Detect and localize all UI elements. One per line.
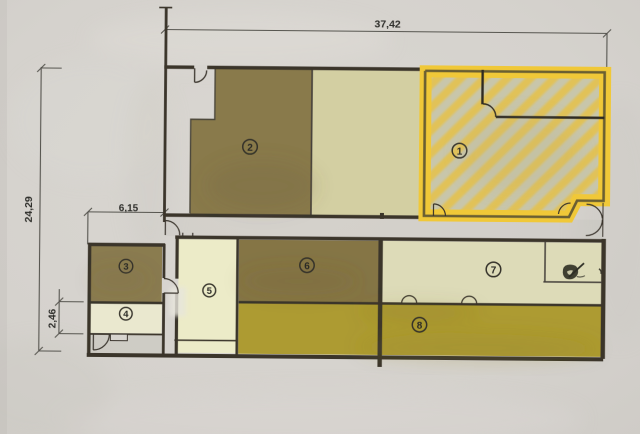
svg-text:6: 6: [304, 261, 310, 272]
svg-text:2: 2: [247, 143, 253, 154]
svg-text:5: 5: [207, 286, 213, 297]
svg-text:24,29: 24,29: [23, 196, 35, 223]
svg-text:6,15: 6,15: [119, 203, 139, 214]
svg-text:8: 8: [417, 321, 423, 332]
svg-text:37,42: 37,42: [374, 18, 401, 30]
svg-text:2,46: 2,46: [48, 308, 59, 328]
svg-text:4: 4: [123, 309, 129, 320]
svg-text:7: 7: [491, 265, 497, 276]
svg-text:3: 3: [123, 262, 128, 273]
